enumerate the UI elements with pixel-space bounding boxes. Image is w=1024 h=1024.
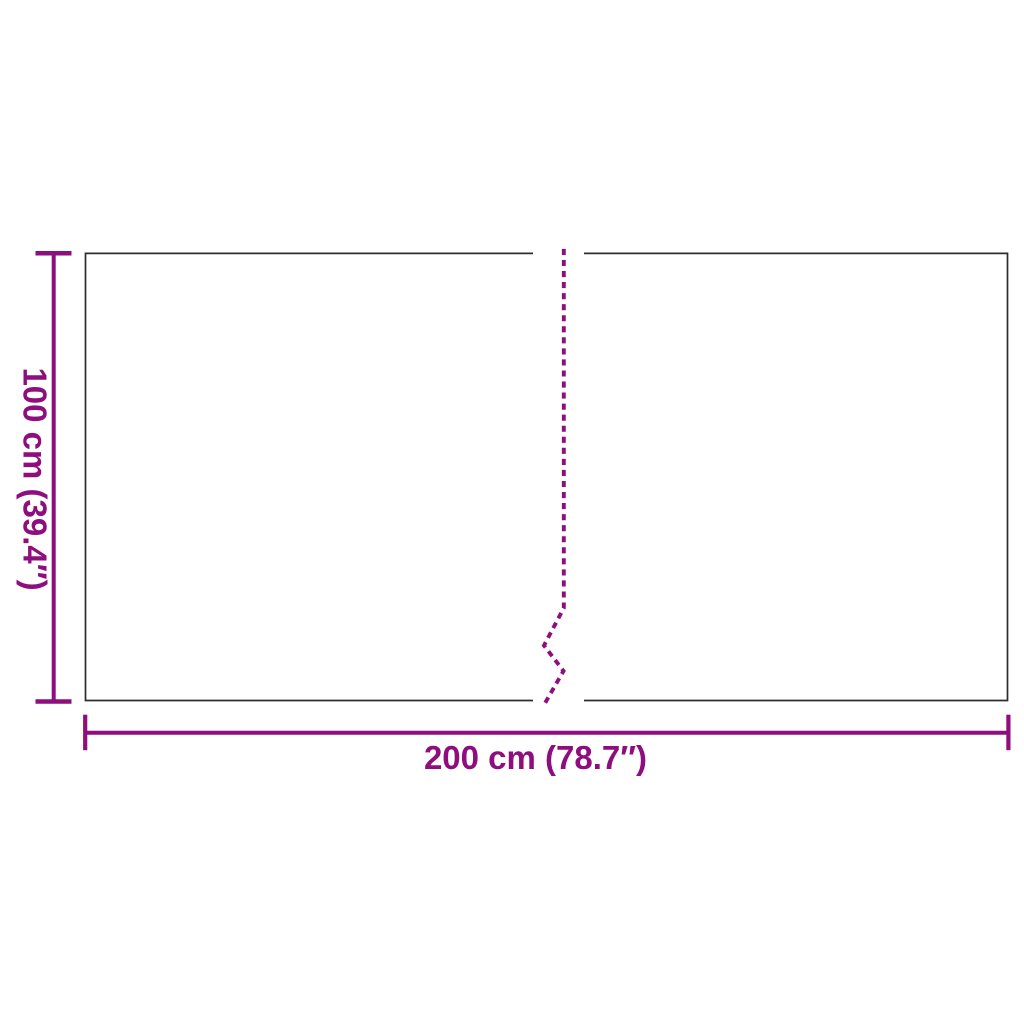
svg-text:200 cm (78.7″): 200 cm (78.7″) (424, 739, 647, 776)
svg-text:100 cm (39.4″): 100 cm (39.4″) (17, 367, 54, 590)
